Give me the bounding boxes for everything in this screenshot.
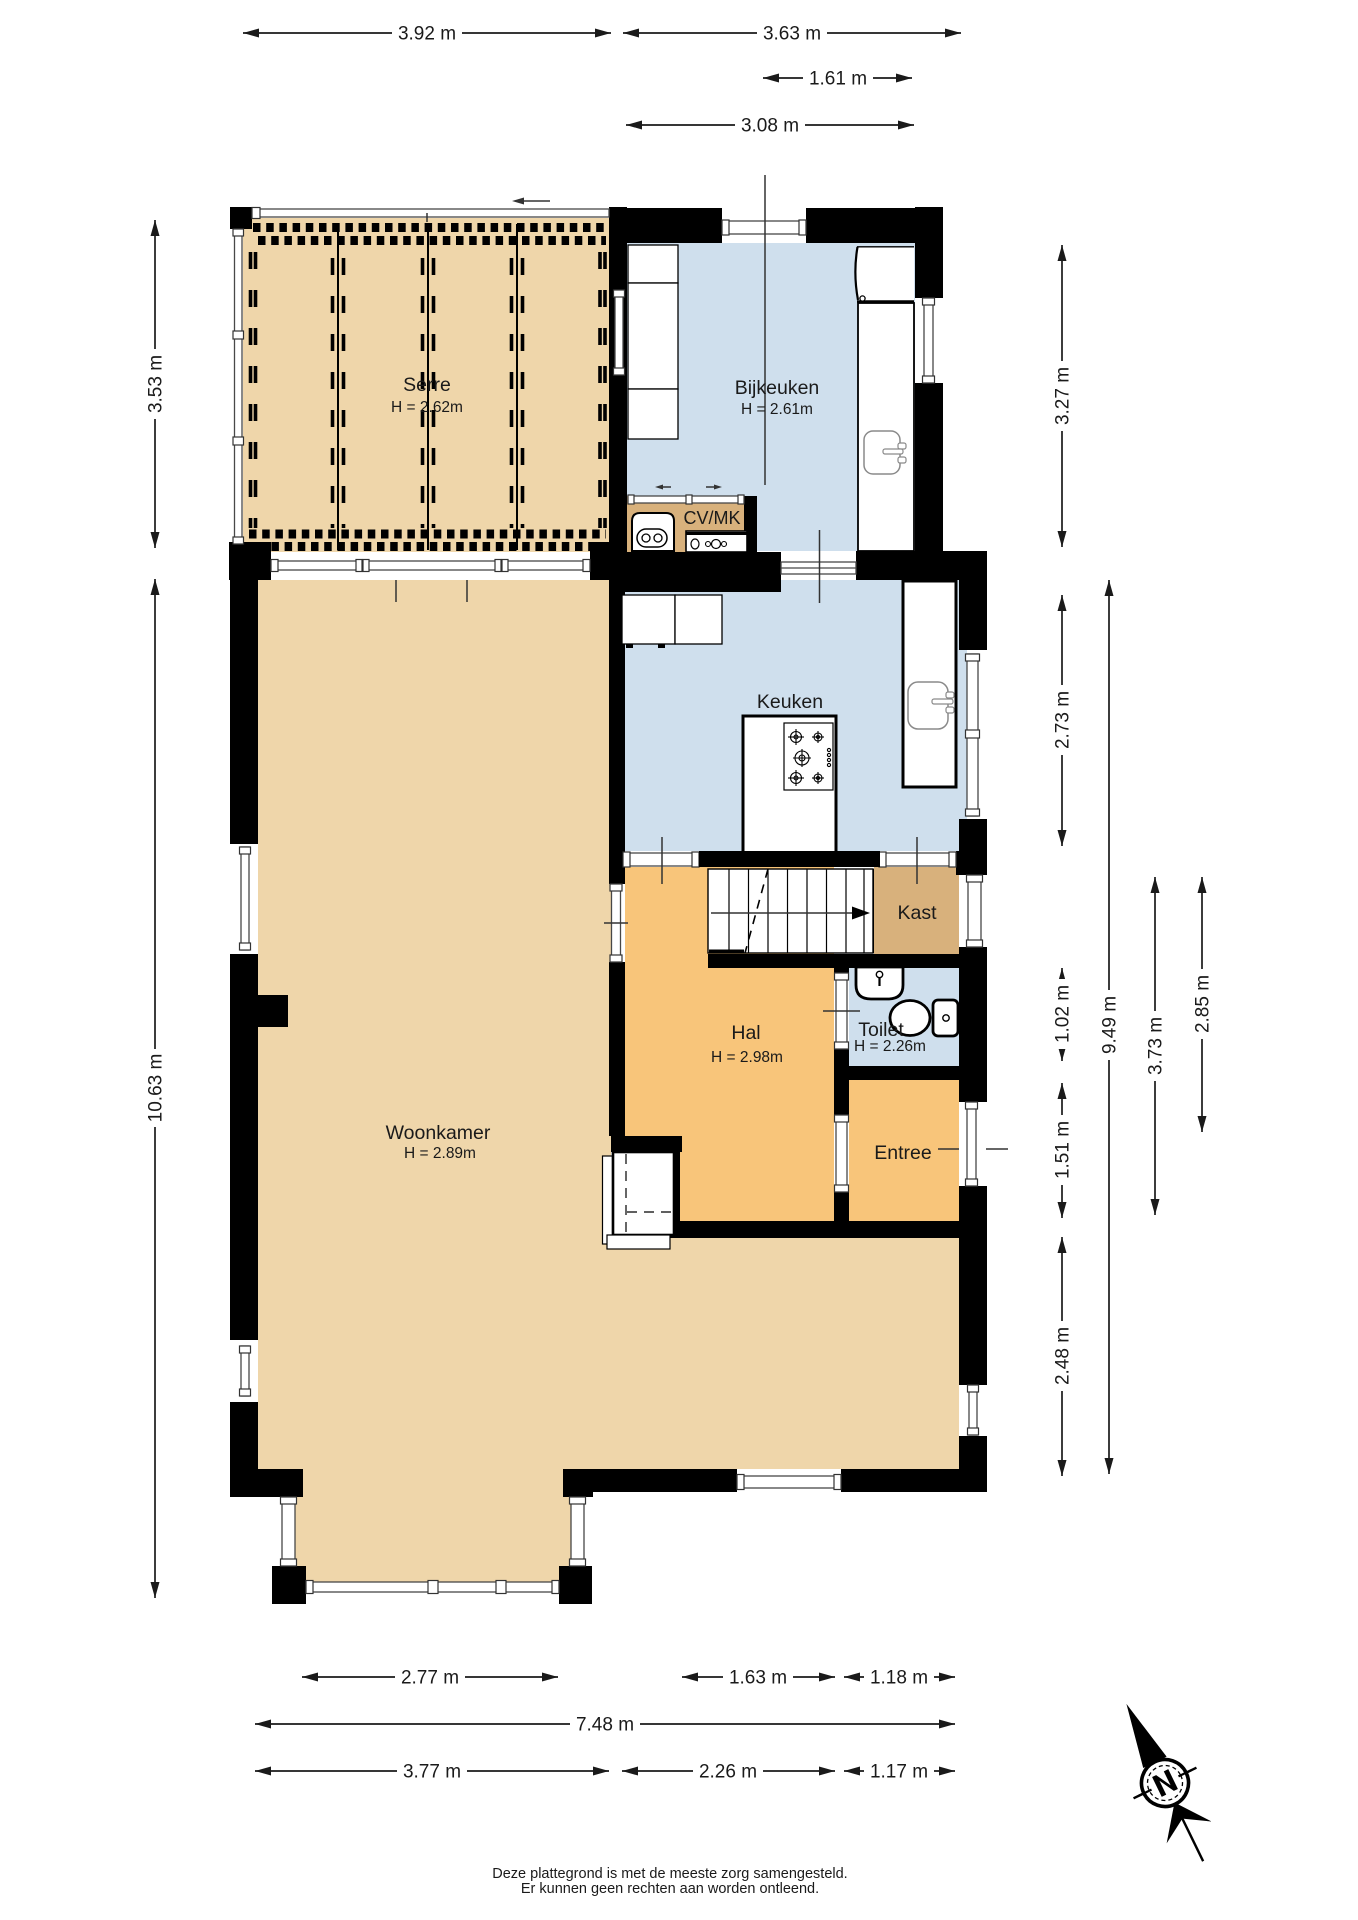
svg-text:3.92 m: 3.92 m	[398, 24, 456, 45]
svg-text:Entree: Entree	[874, 1142, 931, 1164]
svg-text:1.51 m: 1.51 m	[1053, 1121, 1074, 1179]
svg-text:1.18 m: 1.18 m	[870, 1668, 928, 1689]
svg-text:7.48 m: 7.48 m	[576, 1715, 634, 1736]
svg-text:Serre: Serre	[403, 374, 451, 396]
svg-text:Deze plattegrond is met de mee: Deze plattegrond is met de meeste zorg s…	[492, 1866, 847, 1882]
svg-text:H = 2.98m: H = 2.98m	[711, 1049, 783, 1066]
svg-text:3.08 m: 3.08 m	[741, 116, 799, 137]
svg-text:3.53 m: 3.53 m	[146, 355, 167, 413]
svg-text:3.27 m: 3.27 m	[1053, 367, 1074, 425]
svg-text:2.26 m: 2.26 m	[699, 1762, 757, 1783]
svg-text:9.49 m: 9.49 m	[1100, 996, 1121, 1054]
svg-text:2.48 m: 2.48 m	[1053, 1327, 1074, 1385]
svg-text:1.61 m: 1.61 m	[809, 69, 867, 90]
svg-text:1.17 m: 1.17 m	[870, 1762, 928, 1783]
svg-text:Keuken: Keuken	[757, 691, 823, 713]
svg-text:Hal: Hal	[731, 1022, 760, 1044]
svg-text:Bijkeuken: Bijkeuken	[735, 377, 820, 399]
svg-text:3.77 m: 3.77 m	[403, 1762, 461, 1783]
svg-text:H = 2.26m: H = 2.26m	[854, 1038, 926, 1055]
svg-text:CV/MK: CV/MK	[683, 508, 740, 528]
svg-text:10.63 m: 10.63 m	[146, 1054, 167, 1123]
svg-text:H = 2.62m: H = 2.62m	[391, 399, 463, 416]
svg-text:1.02 m: 1.02 m	[1053, 985, 1074, 1043]
svg-text:Kast: Kast	[897, 902, 937, 924]
svg-text:3.63 m: 3.63 m	[763, 24, 821, 45]
svg-text:Er kunnen geen rechten aan wor: Er kunnen geen rechten aan worden ontlee…	[521, 1881, 819, 1897]
svg-text:Woonkamer: Woonkamer	[386, 1122, 491, 1144]
svg-text:2.73 m: 2.73 m	[1053, 691, 1074, 749]
svg-text:H = 2.89m: H = 2.89m	[404, 1145, 476, 1162]
svg-text:3.73 m: 3.73 m	[1146, 1017, 1167, 1075]
svg-text:2.85 m: 2.85 m	[1193, 975, 1214, 1033]
svg-text:2.77 m: 2.77 m	[401, 1668, 459, 1689]
svg-text:H = 2.61m: H = 2.61m	[741, 401, 813, 418]
svg-text:1.63 m: 1.63 m	[729, 1668, 787, 1689]
